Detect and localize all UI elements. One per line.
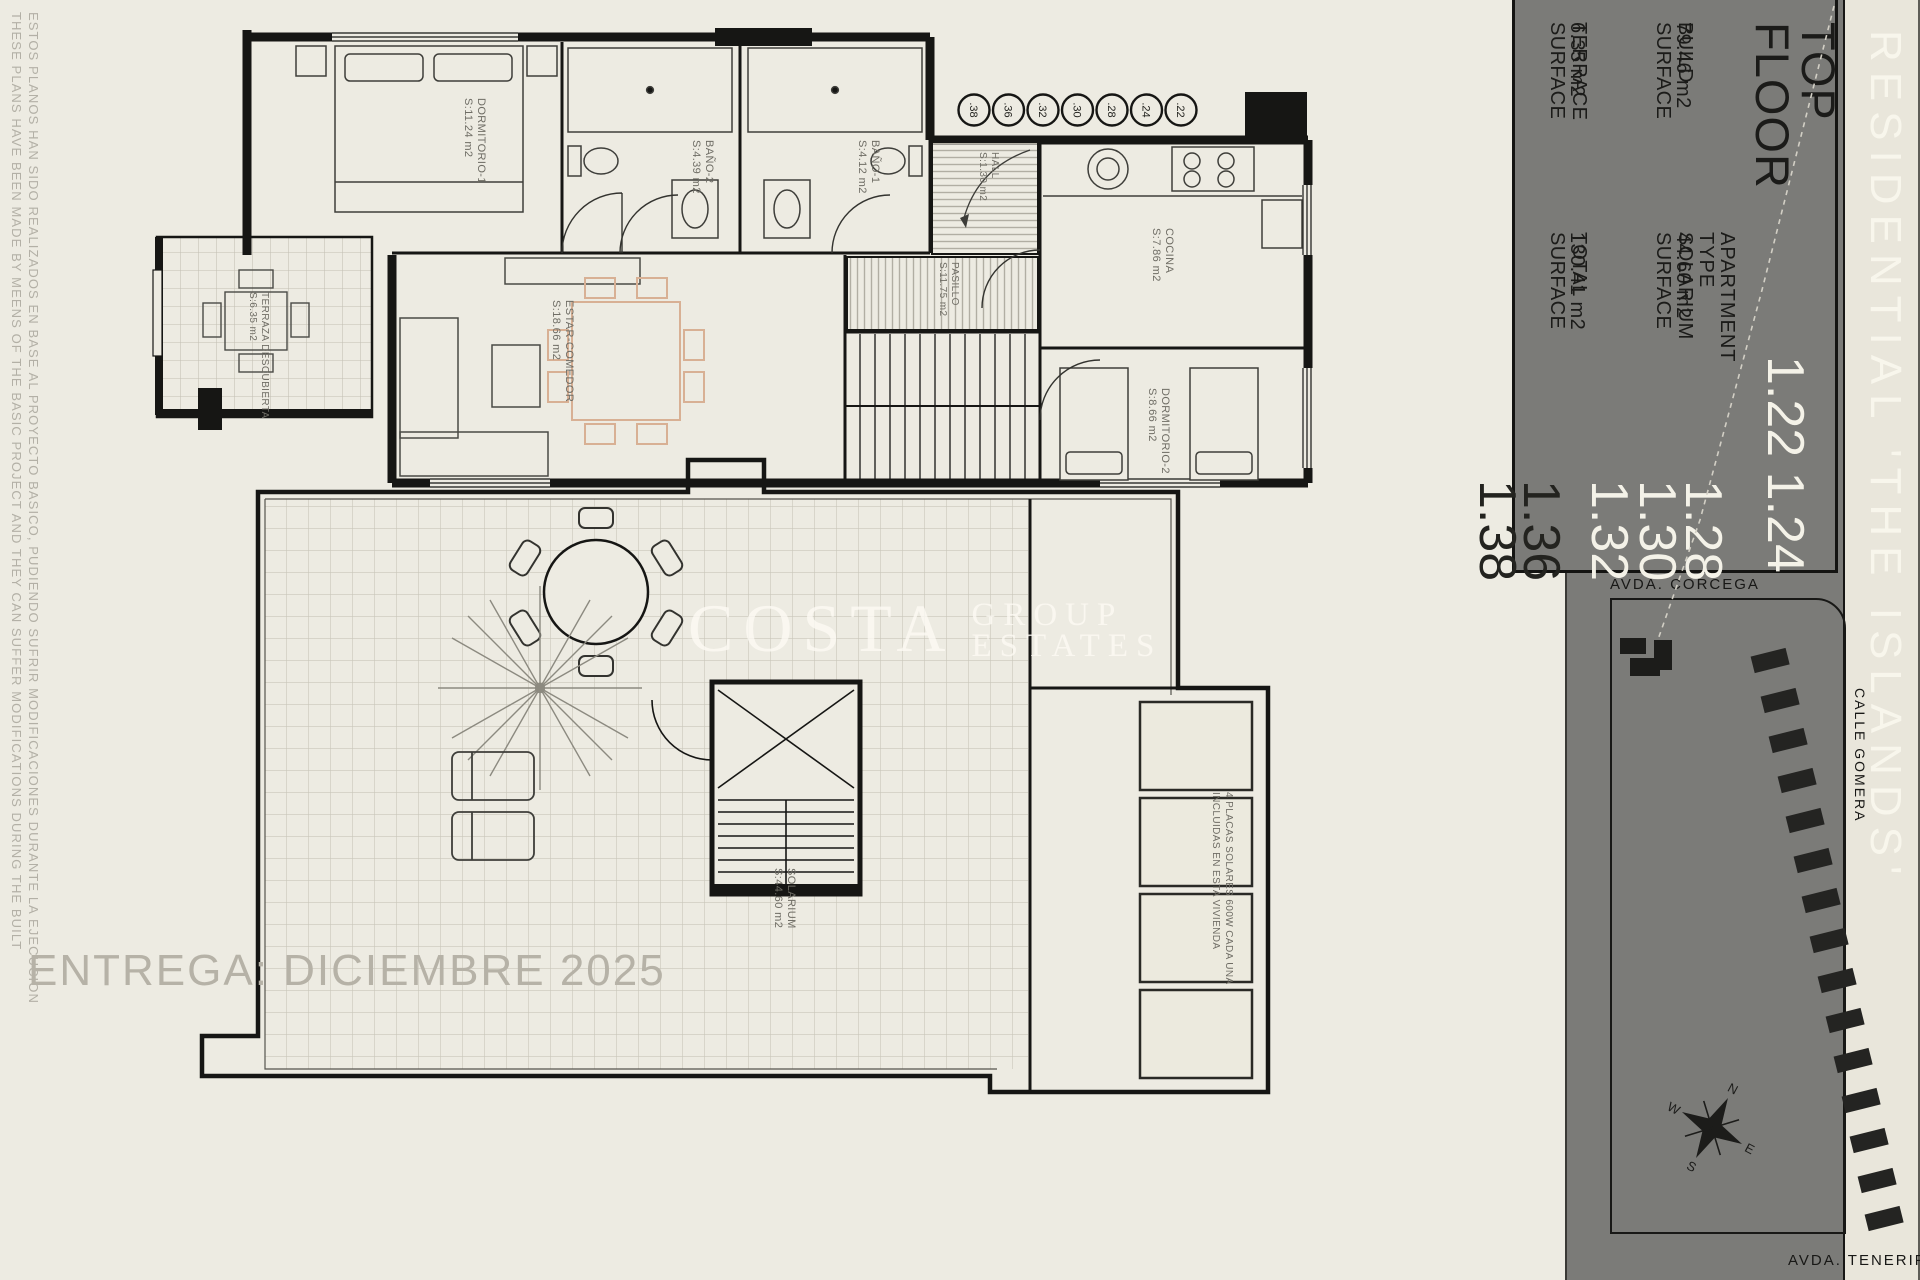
unit-circle-label: .30 xyxy=(1071,102,1083,117)
plan-sheet: THESE PLANS HAVE BEEN MADE BY MEENS OF T… xyxy=(0,0,1920,1280)
compass-south: S xyxy=(1684,1158,1699,1175)
apartment-number: 1.38 xyxy=(1467,480,1527,581)
unit-circle-label: .32 xyxy=(1036,102,1048,117)
delivery-note: ENTREGA: DICIEMBRE 2025 xyxy=(28,946,666,996)
svg-text:DORMITORIO-1: DORMITORIO-1 xyxy=(475,98,487,184)
room-label-solarium: SOLARIUMS:44.60 m2 xyxy=(772,868,797,929)
svg-text:S:11.24 m2: S:11.24 m2 xyxy=(462,98,474,157)
floor-plan-canvas: .38 .36 .32 .30 .28 .24 .22 DORMITORIO-1… xyxy=(0,0,1540,1280)
room-label-cocina: COCINAS:7.86 m2 xyxy=(1150,228,1175,282)
svg-text:ESTAR-COMEDOR: ESTAR-COMEDOR xyxy=(563,300,575,402)
leader-line xyxy=(1655,6,1834,648)
svg-text:HALL: HALL xyxy=(989,152,1000,179)
svg-text:BAÑO-2: BAÑO-2 xyxy=(703,140,716,183)
svg-text:S:4.12 m2: S:4.12 m2 xyxy=(856,140,868,194)
solarium-plan: SOLARIUMS:44.60 m2 4 PLACAS SOLARES 600W… xyxy=(202,460,1268,1092)
svg-text:COCINA: COCINA xyxy=(1163,228,1175,273)
compass-rose: N E S W xyxy=(1645,1059,1779,1195)
svg-text:S:44.60 m2: S:44.60 m2 xyxy=(772,868,784,928)
room-label-bano-2: BAÑO-2S:4.39 m2 xyxy=(690,140,716,194)
svg-text:INCLUIDAS EN ESTA VIVIENDA: INCLUIDAS EN ESTA VIVIENDA xyxy=(1210,792,1221,949)
room-label-dormitorio-2: DORMITORIO-2S:8.66 m2 xyxy=(1146,388,1171,474)
top-floor-plan: .38 .36 .32 .30 .28 .24 .22 DORMITORIO-1… xyxy=(153,28,1314,489)
svg-text:S:1.30 m2: S:1.30 m2 xyxy=(977,152,988,201)
svg-text:S:6.35 m2: S:6.35 m2 xyxy=(247,292,258,341)
svg-text:SOLARIUM: SOLARIUM xyxy=(785,868,797,929)
unit-circle-label: .28 xyxy=(1105,102,1117,117)
highlighted-building-cluster xyxy=(1620,638,1672,676)
svg-text:PASILLO: PASILLO xyxy=(949,262,960,306)
room-label-estar-comedor: ESTAR-COMEDORS:18.66 m2 xyxy=(550,300,575,402)
unit-number-circles: .38 .36 .32 .30 .28 .24 .22 xyxy=(959,95,1197,126)
unit-circle-label: .24 xyxy=(1140,102,1152,117)
unit-circle-label: .22 xyxy=(1174,102,1186,117)
svg-text:BAÑO-1: BAÑO-1 xyxy=(869,140,882,183)
svg-text:TERRAZA DESCUBIERTA: TERRAZA DESCUBIERTA xyxy=(259,292,270,419)
compass-west: W xyxy=(1665,1099,1684,1118)
compass-north: N xyxy=(1725,1080,1740,1098)
svg-text:S:4.39 m2: S:4.39 m2 xyxy=(690,140,702,194)
svg-text:DORMITORIO-2: DORMITORIO-2 xyxy=(1159,388,1171,474)
svg-text:4 PLACAS SOLARES 600W CADA UNA: 4 PLACAS SOLARES 600W CADA UNA xyxy=(1223,792,1234,985)
svg-text:S:18.66 m2: S:18.66 m2 xyxy=(550,300,562,360)
unit-circle-label: .38 xyxy=(967,102,979,117)
site-map-graphics: N E S W xyxy=(1540,0,1920,1280)
svg-text:S:11.75 m2: S:11.75 m2 xyxy=(937,262,948,316)
room-label-bano-1: BAÑO-1S:4.12 m2 xyxy=(856,140,882,194)
svg-text:S:8.66 m2: S:8.66 m2 xyxy=(1146,388,1158,442)
compass-east: E xyxy=(1742,1140,1757,1157)
svg-text:S:7.86 m2: S:7.86 m2 xyxy=(1150,228,1162,282)
unit-circle-label: .36 xyxy=(1002,102,1014,117)
building-row xyxy=(1751,648,1904,1231)
